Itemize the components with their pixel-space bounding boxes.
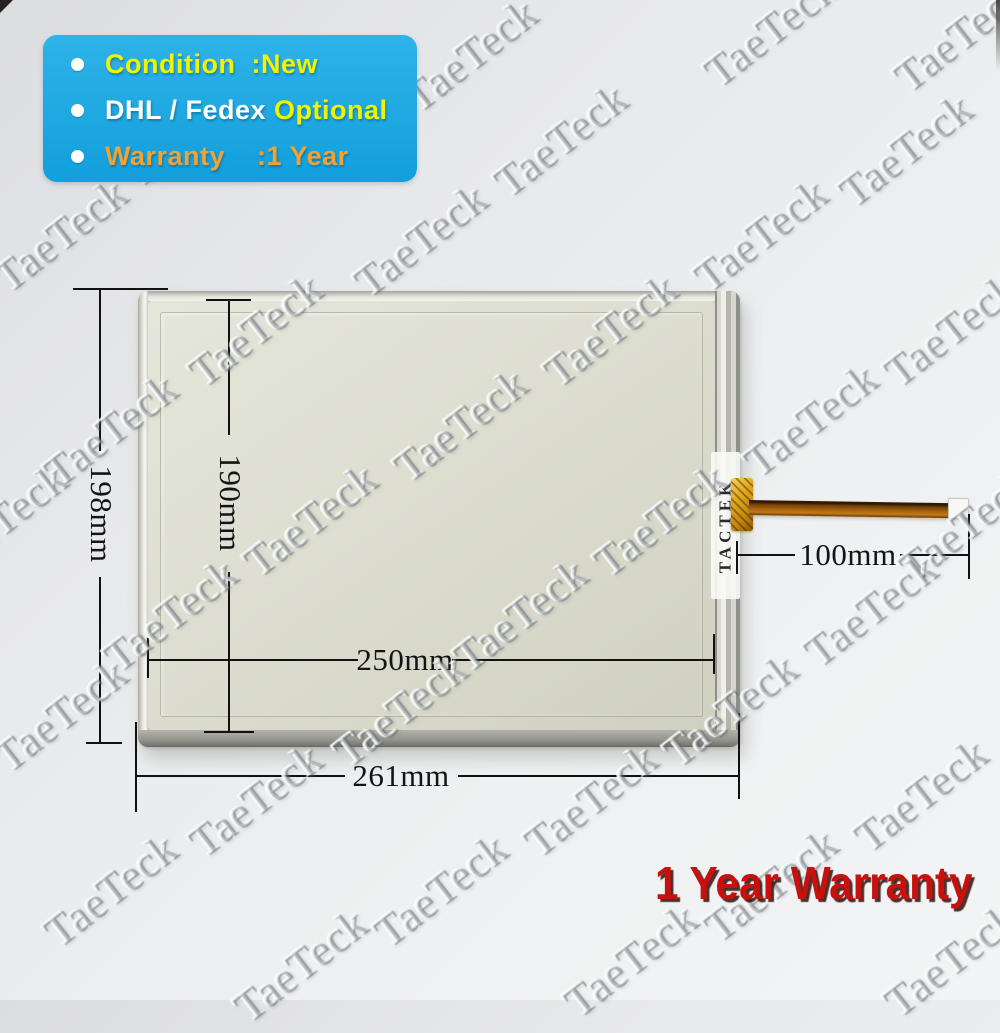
badge-row-text: DHL / Fedex xyxy=(105,95,274,126)
badge-row: DHL / Fedex Optional xyxy=(71,95,417,126)
panel-frame-top xyxy=(138,291,740,301)
cable-connector-tip xyxy=(948,498,969,519)
info-badge: Condition :NewDHL / Fedex OptionalWarran… xyxy=(43,35,417,182)
watermark-text: TaeTeck xyxy=(683,167,836,302)
photo-corner-artifact-topleft xyxy=(0,0,13,13)
watermark-text: TaeTeck xyxy=(178,732,331,867)
touch-panel-image xyxy=(138,291,740,747)
warranty-note: 1 Year Warranty xyxy=(655,856,973,910)
panel-glass xyxy=(148,301,715,730)
watermark-text: TaeTeck xyxy=(553,892,706,1027)
watermark-text: TaeTeck xyxy=(843,727,996,862)
watermark-text: TaeTeck xyxy=(873,892,1000,1027)
watermark-text: TaeTeck xyxy=(828,82,981,217)
watermark-text: TaeTeck xyxy=(883,0,1000,103)
watermark-text: TaeTeck xyxy=(33,822,186,957)
flex-cable-ribbon xyxy=(749,500,949,518)
watermark-text: TaeTeck xyxy=(0,647,137,782)
watermark-text: TaeTeck xyxy=(793,542,946,677)
badge-row-text: Optional xyxy=(274,95,388,126)
panel-frame-left xyxy=(138,291,148,747)
watermark-text: TaeTeck xyxy=(733,352,886,487)
panel-active-area-outline xyxy=(160,312,703,717)
watermark-text: TaeTeck xyxy=(223,897,376,1032)
watermark-text: TaeTeck xyxy=(0,167,137,302)
watermark-text: TaeTeck xyxy=(363,822,516,957)
watermark-text: TaeTeck xyxy=(888,457,1000,592)
panel-frame-bottom xyxy=(138,730,740,747)
dimension-label-outer-width: 261mm xyxy=(352,758,449,794)
bullet-icon xyxy=(71,58,84,71)
watermark-text: TaeTeck xyxy=(513,732,666,867)
photo-corner-artifact-topright xyxy=(996,0,1000,72)
watermark-text: TaeTeck xyxy=(693,0,846,98)
badge-row: Condition :New xyxy=(71,49,417,80)
watermark-text: TaeTeck xyxy=(0,452,77,587)
dimension-label-cable-length: 100mm xyxy=(799,537,896,573)
brand-label: TACTEK xyxy=(716,478,736,573)
brand-label-strip: TACTEK xyxy=(711,452,740,599)
badge-row-text: Condition :New xyxy=(105,49,318,80)
bullet-icon xyxy=(71,150,84,163)
dimension-label-outer-height: 198mm xyxy=(83,465,119,562)
badge-row: Warranty :1 Year xyxy=(71,141,417,172)
watermark-text: TaeTeck xyxy=(873,262,1000,397)
watermark-text: TaeTeck xyxy=(483,72,636,207)
badge-row-text: Warranty :1 Year xyxy=(105,141,349,172)
watermark-text: TaeTeck xyxy=(343,172,496,307)
bullet-icon xyxy=(71,104,84,117)
